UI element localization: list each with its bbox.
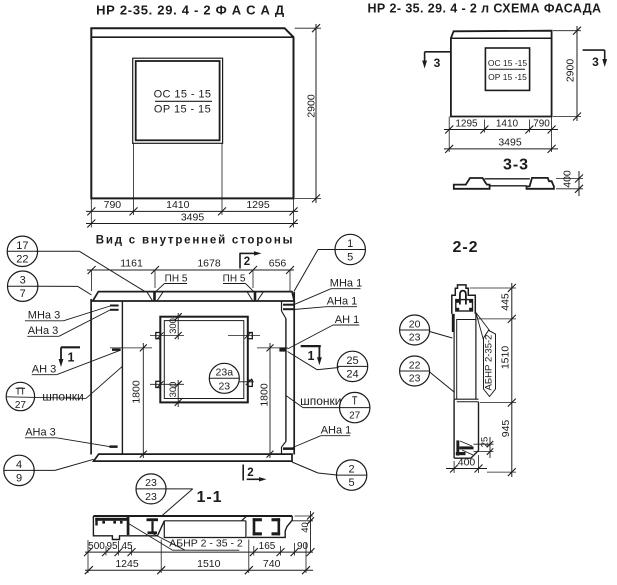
svg-text:22: 22 [409,360,421,372]
svg-text:3: 3 [592,55,599,69]
svg-text:23: 23 [145,477,157,489]
svg-text:1161: 1161 [120,258,143,270]
svg-text:22: 22 [16,253,28,265]
svg-text:Вид с внутренней стороны: Вид с внутренней стороны [96,235,295,247]
svg-text:2-2: 2-2 [452,239,478,256]
svg-text:МНа 3: МНа 3 [28,310,60,322]
svg-text:1678: 1678 [197,258,221,270]
svg-text:23: 23 [145,491,157,503]
svg-text:23: 23 [409,332,421,344]
svg-text:ПН 5: ПН 5 [165,274,188,285]
svg-text:ОР 15 - 15: ОР 15 - 15 [154,104,211,116]
svg-text:2900: 2900 [306,94,318,118]
svg-text:1: 1 [347,238,353,250]
svg-text:1800: 1800 [259,383,271,407]
svg-text:2: 2 [247,467,253,479]
svg-text:П: П [17,387,24,398]
svg-text:1410: 1410 [496,118,519,129]
svg-text:НР 2-35. 29. 4 - 2 Ф А С А Д: НР 2-35. 29. 4 - 2 Ф А С А Д [96,3,285,18]
svg-text:4: 4 [16,459,22,471]
svg-text:ОР 15 -15: ОР 15 -15 [488,72,527,82]
svg-text:ОС 15 -15: ОС 15 -15 [488,58,527,68]
svg-text:165: 165 [259,541,276,552]
svg-text:АНа 3: АНа 3 [28,325,59,337]
svg-text:шпонки: шпонки [300,394,341,408]
svg-text:шпонки: шпонки [42,390,83,404]
svg-text:27: 27 [349,411,361,422]
svg-text:МНа 1: МНа 1 [330,278,362,290]
svg-text:1410: 1410 [166,199,190,211]
svg-text:40: 40 [300,522,311,533]
svg-text:АН 3: АН 3 [32,364,56,376]
svg-text:1: 1 [308,349,315,363]
svg-text:25: 25 [346,355,358,367]
svg-text:2: 2 [349,464,355,476]
svg-text:АБНР 2-35-2: АБНР 2-35-2 [484,335,495,391]
svg-text:I: I [353,397,356,408]
svg-text:1245: 1245 [115,558,139,570]
svg-text:790: 790 [104,199,122,211]
svg-text:300: 300 [168,382,179,398]
svg-text:300: 300 [168,318,179,334]
svg-text:7: 7 [20,288,26,300]
svg-text:500: 500 [88,541,105,552]
svg-text:790: 790 [533,118,550,129]
svg-text:95: 95 [106,541,118,552]
svg-text:23: 23 [218,381,230,393]
svg-text:ОС 15 - 15: ОС 15 - 15 [154,89,212,101]
svg-text:1295: 1295 [246,199,270,211]
svg-text:1: 1 [68,351,75,365]
svg-text:3-3: 3-3 [503,157,529,174]
svg-text:23: 23 [409,373,421,385]
svg-text:23а: 23а [216,367,234,379]
svg-text:25: 25 [480,437,491,448]
svg-text:945: 945 [500,420,512,438]
svg-text:45: 45 [121,541,133,552]
svg-text:2900: 2900 [565,59,577,83]
svg-text:400: 400 [562,170,574,188]
svg-text:НР 2- 35. 29. 4 - 2 л СХЕМА Ф: НР 2- 35. 29. 4 - 2 л СХЕМА ФАСАДА [368,2,602,16]
svg-text:1295: 1295 [455,118,478,129]
svg-text:24: 24 [346,368,358,380]
svg-text:445: 445 [500,293,512,311]
svg-text:5: 5 [349,477,355,489]
svg-text:ПН 5: ПН 5 [223,274,246,285]
svg-text:3: 3 [20,275,26,287]
svg-text:1510: 1510 [500,346,512,370]
svg-text:17: 17 [16,240,28,252]
svg-text:3: 3 [434,56,441,70]
svg-text:656: 656 [269,258,287,270]
svg-text:27: 27 [15,400,27,411]
svg-text:1510: 1510 [197,558,221,570]
svg-text:5: 5 [347,252,353,264]
svg-text:3495: 3495 [498,137,522,149]
svg-text:2: 2 [244,256,250,268]
svg-text:9: 9 [16,472,22,484]
svg-text:20: 20 [409,319,421,331]
svg-text:АН 1: АН 1 [335,314,359,326]
svg-text:400: 400 [458,456,476,468]
svg-text:1800: 1800 [131,380,143,404]
svg-text:740: 740 [263,558,281,570]
svg-text:3495: 3495 [181,212,205,224]
svg-text:90: 90 [297,541,309,552]
svg-text:АНа 1: АНа 1 [321,425,352,437]
svg-text:1-1: 1-1 [196,489,222,506]
svg-text:АНа 3: АНа 3 [25,427,56,439]
svg-text:АНа 1: АНа 1 [327,296,358,308]
